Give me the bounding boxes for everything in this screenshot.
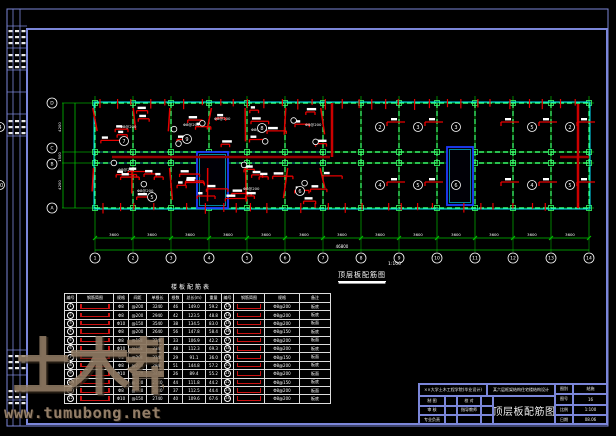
- table-cell: Φ8: [114, 303, 129, 311]
- svg-text:D: D: [50, 101, 54, 107]
- table-cell: 44: [169, 378, 183, 386]
- table-row: 3Φ10@150354038134.583.015Φ8@200板面: [65, 319, 331, 327]
- svg-text:1: 1: [94, 256, 97, 262]
- table-cell: 19: [222, 353, 234, 361]
- svg-text:4200: 4200: [57, 122, 62, 132]
- table-cell: 42: [169, 311, 183, 319]
- table-cell: 55.2: [206, 370, 222, 378]
- table-cell: 3240: [147, 303, 169, 311]
- plan-caption: 顶层板配筋图1:100: [338, 262, 401, 282]
- table-cell: Φ8@200: [265, 361, 300, 369]
- rebar-number-bubble: 18: [224, 345, 231, 352]
- table-cell: 板底: [300, 328, 331, 336]
- beam-joints: [93, 101, 592, 211]
- svg-text:2: 2: [132, 256, 135, 262]
- rebar-number-bubble: 4: [67, 328, 74, 335]
- table-cell: 板底: [300, 344, 331, 352]
- svg-text:4: 4: [208, 256, 211, 262]
- svg-text:3600: 3600: [375, 232, 385, 237]
- titleblock-label: 比例: [555, 405, 573, 415]
- rebar-diagram-glyph: [80, 322, 110, 325]
- table-cell: 83.0: [206, 319, 222, 327]
- rebar-diagram-glyph: [80, 306, 110, 309]
- rebar-bars: [92, 99, 595, 214]
- table-cell: 46: [169, 303, 183, 311]
- svg-text:4200: 4200: [57, 180, 62, 190]
- svg-text:14: 14: [586, 256, 592, 262]
- svg-text:6: 6: [298, 189, 301, 195]
- rebar-diagram-glyph: [237, 306, 262, 309]
- table-cell: [234, 303, 265, 311]
- svg-text:3600: 3600: [223, 232, 233, 237]
- table-header: 备注: [300, 294, 331, 303]
- plan-caption-text: 顶层板配筋图: [338, 270, 386, 282]
- table-cell: 38: [169, 319, 183, 327]
- svg-text:Φ8@200: Φ8@200: [305, 122, 322, 127]
- svg-text:5: 5: [530, 125, 533, 131]
- rebar-number-bubble: 17: [224, 337, 231, 344]
- svg-text:5: 5: [416, 183, 419, 189]
- table-cell: 42.2: [206, 336, 222, 344]
- table-cell: [77, 328, 114, 336]
- titleblock-value: 16: [573, 394, 608, 404]
- table-cell: 33: [169, 336, 183, 344]
- svg-text:3: 3: [170, 256, 173, 262]
- svg-text:9: 9: [398, 256, 401, 262]
- svg-text:3600: 3600: [451, 232, 461, 237]
- svg-text:C: C: [50, 146, 53, 152]
- table-cell: 2: [65, 311, 77, 319]
- table-cell: 15: [222, 319, 234, 327]
- svg-text:9: 9: [185, 137, 188, 143]
- title-block: ××大学土木工程学院(毕业设计)某六层框架结构住宅楼结构设计制 图校 对审 核指…: [418, 383, 607, 424]
- svg-text:7: 7: [322, 256, 325, 262]
- table-cell: 51: [169, 361, 183, 369]
- titleblock-value: [445, 406, 457, 416]
- svg-text:13: 13: [548, 256, 554, 262]
- table-cell: 67.6: [206, 395, 222, 403]
- rebar-number-bubble: 15: [224, 320, 231, 327]
- table-cell: 板面: [300, 386, 331, 394]
- table-cell: 2940: [147, 311, 169, 319]
- svg-text:3600: 3600: [413, 232, 423, 237]
- project-name: 某六层框架结构住宅楼结构设计: [487, 384, 555, 396]
- callout-blobs: [102, 106, 587, 199]
- svg-text:46800: 46800: [336, 244, 349, 249]
- table-header: 重量: [206, 294, 222, 303]
- titleblock-value: [481, 415, 493, 425]
- rebar-number-bubble: 22: [224, 379, 231, 386]
- svg-text:11: 11: [472, 256, 478, 262]
- table-cell: 112.3: [183, 344, 206, 352]
- table-cell: Φ8@200: [265, 303, 300, 311]
- watermark-url: www.tumubong.net: [4, 404, 161, 422]
- table-cell: 21: [222, 370, 234, 378]
- titleblock-label: 日期: [555, 415, 573, 425]
- svg-text:7: 7: [122, 139, 125, 145]
- svg-text:5: 5: [246, 256, 249, 262]
- drawing-title: 顶层板配筋图: [493, 396, 555, 425]
- table-cell: 59.2: [206, 303, 222, 311]
- table-cell: 111.8: [183, 378, 206, 386]
- table-row: 2Φ8@200294042123.548.814Φ8@200板底: [65, 311, 331, 319]
- table-header: 总长(m): [183, 294, 206, 303]
- table-cell: [77, 319, 114, 327]
- svg-text:Φ8@200: Φ8@200: [214, 116, 231, 121]
- table-cell: Φ8@200: [265, 344, 300, 352]
- table-cell: 29: [169, 353, 183, 361]
- rebar-number-bubble: 21: [224, 370, 231, 377]
- rebar-number-bubble: 2: [67, 312, 74, 319]
- table-cell: 69.3: [206, 344, 222, 352]
- svg-text:3600: 3600: [337, 232, 347, 237]
- rebar-table-title: 楼板配筋表: [64, 282, 318, 291]
- rebar-number-bubble: 19: [224, 354, 231, 361]
- table-cell: 48: [169, 344, 183, 352]
- rebar-number-bubble: 20: [224, 362, 231, 369]
- table-cell: @200: [129, 328, 147, 336]
- table-cell: 4: [65, 328, 77, 336]
- table-cell: Φ8@150: [265, 378, 300, 386]
- rebar-number-bubble: 14: [224, 312, 231, 319]
- rebar-diagram-glyph: [80, 314, 110, 317]
- table-cell: 17: [222, 336, 234, 344]
- table-cell: [234, 370, 265, 378]
- table-cell: 18: [222, 344, 234, 352]
- titleblock-label: 制 图: [419, 396, 445, 406]
- table-cell: 106.9: [183, 336, 206, 344]
- svg-text:3600: 3600: [299, 232, 309, 237]
- svg-text:8: 8: [260, 126, 263, 132]
- table-cell: 板底: [300, 378, 331, 386]
- rebar-diagram-glyph: [237, 398, 262, 401]
- table-cell: 44.4: [206, 386, 222, 394]
- titleblock-value: 08.06: [573, 415, 608, 425]
- table-cell: 23: [222, 386, 234, 394]
- svg-text:1500: 1500: [57, 152, 62, 162]
- table-cell: @150: [129, 319, 147, 327]
- rebar-diagram-glyph: [237, 356, 262, 359]
- svg-text:10: 10: [434, 256, 440, 262]
- table-header: 规格: [265, 294, 300, 303]
- table-cell: 56: [169, 328, 183, 336]
- table-cell: 13: [222, 303, 234, 311]
- rebar-diagram-glyph: [237, 314, 262, 317]
- svg-text:4: 4: [378, 183, 381, 189]
- rebar-diagram-glyph: [80, 331, 110, 334]
- svg-text:Φ8@200: Φ8@200: [243, 186, 260, 191]
- titleblock-label: 图别: [555, 384, 573, 394]
- table-cell: 板底: [300, 395, 331, 403]
- titleblock-value: [445, 415, 457, 425]
- svg-text:3600: 3600: [565, 232, 575, 237]
- table-cell: [234, 386, 265, 394]
- table-header: 钢筋简图: [234, 294, 265, 303]
- rebar-diagram-glyph: [237, 390, 262, 393]
- table-cell: 24: [222, 395, 234, 403]
- svg-text:4: 4: [530, 183, 533, 189]
- svg-text:2: 2: [568, 125, 571, 131]
- svg-text:3: 3: [454, 125, 457, 131]
- table-cell: 板面: [300, 353, 331, 361]
- svg-text:Φ8@200: Φ8@200: [118, 167, 135, 172]
- table-cell: [234, 378, 265, 386]
- rebar-number-bubble: 23: [224, 387, 231, 394]
- table-cell: Φ8: [114, 328, 129, 336]
- rebar-diagram-glyph: [237, 339, 262, 342]
- svg-text:3600: 3600: [147, 232, 157, 237]
- titleblock-value: 1:100: [573, 405, 608, 415]
- table-cell: 板底: [300, 311, 331, 319]
- table-cell: 板面: [300, 370, 331, 378]
- svg-text:5: 5: [568, 183, 571, 189]
- rebar-diagram-glyph: [80, 398, 110, 401]
- table-cell: [234, 353, 265, 361]
- rebar-number-bubble: 1: [67, 303, 74, 310]
- table-cell: 板面: [300, 319, 331, 327]
- table-cell: 板底: [300, 303, 331, 311]
- table-cell: [234, 361, 265, 369]
- table-cell: Φ8: [114, 311, 129, 319]
- svg-text:3600: 3600: [489, 232, 499, 237]
- titleblock-label: 图号: [555, 394, 573, 404]
- titleblock-value: [445, 396, 457, 406]
- rebar-diagram-glyph: [237, 373, 262, 376]
- table-cell: 3540: [147, 319, 169, 327]
- rebar-diagram-glyph: [237, 322, 262, 325]
- rebar-number-bubble: 13: [224, 303, 231, 310]
- titleblock-label: [457, 415, 481, 425]
- table-header: 钢筋简图: [77, 294, 114, 303]
- table-cell: 91.1: [183, 353, 206, 361]
- table-cell: 板底: [300, 361, 331, 369]
- table-cell: Φ8@150: [265, 353, 300, 361]
- table-header: 单根长: [147, 294, 169, 303]
- table-cell: Φ8@200: [265, 395, 300, 403]
- table-cell: 144.8: [183, 361, 206, 369]
- table-cell: 37: [169, 386, 183, 394]
- table-header: 编号: [65, 294, 77, 303]
- svg-text:4: 4: [0, 125, 2, 131]
- svg-text:2: 2: [378, 125, 381, 131]
- svg-text:Φ8@200: Φ8@200: [120, 124, 137, 129]
- company-name: ××大学土木工程学院(毕业设计): [419, 384, 487, 396]
- rebar-number-bubble: 3: [67, 320, 74, 327]
- table-cell: 48.8: [206, 311, 222, 319]
- table-row: 4Φ8@200264056147.858.416Φ8@150板底: [65, 328, 331, 336]
- table-cell: [77, 303, 114, 311]
- table-cell: [77, 311, 114, 319]
- table-cell: Φ8@200: [265, 319, 300, 327]
- svg-text:10: 10: [0, 183, 3, 189]
- svg-text:3: 3: [416, 125, 419, 131]
- table-cell: 26: [169, 370, 183, 378]
- table-cell: Φ8@200: [265, 370, 300, 378]
- table-header: 编号: [222, 294, 234, 303]
- table-cell: Φ8@200: [265, 386, 300, 394]
- table-cell: 1: [65, 303, 77, 311]
- table-cell: 14: [222, 311, 234, 319]
- table-cell: 147.8: [183, 328, 206, 336]
- table-cell: 123.5: [183, 311, 206, 319]
- svg-text:B: B: [50, 162, 53, 168]
- svg-text:12: 12: [510, 256, 516, 262]
- titleblock-label: 指导教师: [457, 406, 481, 416]
- table-cell: 2640: [147, 328, 169, 336]
- svg-text:8: 8: [360, 256, 363, 262]
- table-cell: 板面: [300, 336, 331, 344]
- table-cell: 112.5: [183, 386, 206, 394]
- svg-text:3600: 3600: [261, 232, 271, 237]
- rebar-number-bubble: 16: [224, 328, 231, 335]
- rebar-diagram-glyph: [237, 331, 262, 334]
- table-cell: [234, 336, 265, 344]
- table-cell: [234, 319, 265, 327]
- table-cell: 16: [222, 328, 234, 336]
- table-cell: 20: [222, 361, 234, 369]
- watermark-logo: 土木帮: [12, 336, 164, 398]
- titleblock-label: 校 对: [457, 396, 481, 406]
- table-cell: @200: [129, 311, 147, 319]
- table-cell: [234, 328, 265, 336]
- titleblock-value: 结施: [573, 384, 608, 394]
- building-outline: [94, 102, 590, 209]
- table-cell: [234, 344, 265, 352]
- rebar-number-bubble: 24: [224, 395, 231, 402]
- table-cell: [234, 395, 265, 403]
- table-cell: Φ10: [114, 319, 129, 327]
- table-header: 间距: [129, 294, 147, 303]
- svg-text:3600: 3600: [109, 232, 119, 237]
- table-header: 规格: [114, 294, 129, 303]
- svg-text:3600: 3600: [527, 232, 537, 237]
- svg-text:5: 5: [150, 195, 153, 201]
- table-cell: 109.6: [183, 395, 206, 403]
- table-cell: 57.2: [206, 361, 222, 369]
- table-cell: 44.2: [206, 378, 222, 386]
- table-cell: [234, 311, 265, 319]
- svg-text:6: 6: [454, 183, 457, 189]
- table-cell: @200: [129, 303, 147, 311]
- rebar-diagram-glyph: [237, 381, 262, 384]
- rebar-diagram-glyph: [237, 364, 262, 367]
- table-header: 根数: [169, 294, 183, 303]
- table-cell: 36.0: [206, 353, 222, 361]
- titleblock-value: [481, 396, 493, 406]
- svg-text:6: 6: [284, 256, 287, 262]
- svg-text:3600: 3600: [185, 232, 195, 237]
- drawing-sheet: Φ8@200Φ8@200Φ8@200Φ8@200Φ8@200Φ8@200Φ8@2…: [0, 0, 616, 436]
- table-cell: Φ8@200: [265, 311, 300, 319]
- table-cell: 89.4: [183, 370, 206, 378]
- svg-text:Φ8@200: Φ8@200: [183, 122, 200, 127]
- table-cell: 40: [169, 395, 183, 403]
- titleblock-label: 审 核: [419, 406, 445, 416]
- plan-scale: 1:100: [388, 262, 401, 267]
- titleblock-label: 专业负责: [419, 415, 445, 425]
- table-cell: 3: [65, 319, 77, 327]
- table-cell: Φ8@200: [265, 336, 300, 344]
- table-cell: 134.5: [183, 319, 206, 327]
- table-cell: 149.0: [183, 303, 206, 311]
- titleblock-value: [481, 406, 493, 416]
- table-cell: 58.4: [206, 328, 222, 336]
- table-cell: 22: [222, 378, 234, 386]
- table-cell: Φ8@150: [265, 328, 300, 336]
- table-row: 1Φ8@200324046149.059.213Φ8@200板底: [65, 303, 331, 311]
- rebar-diagram-glyph: [237, 348, 262, 351]
